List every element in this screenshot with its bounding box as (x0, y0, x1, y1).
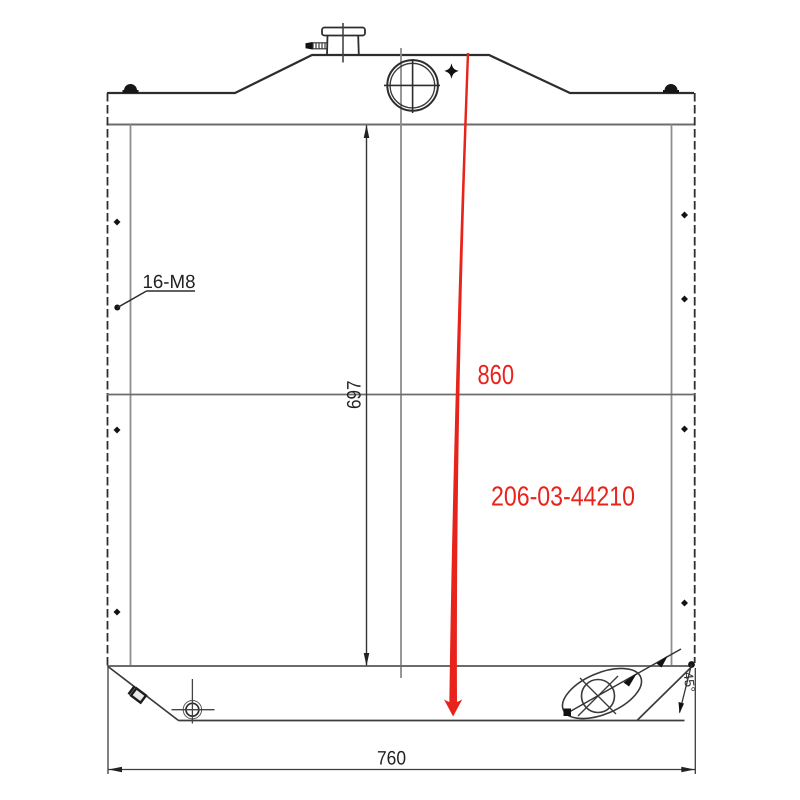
svg-text:760: 760 (377, 748, 406, 770)
svg-text:206-03-44210: 206-03-44210 (491, 481, 635, 512)
svg-text:860: 860 (478, 359, 515, 390)
svg-text:16-M8: 16-M8 (143, 272, 196, 293)
svg-text:697: 697 (344, 381, 366, 410)
